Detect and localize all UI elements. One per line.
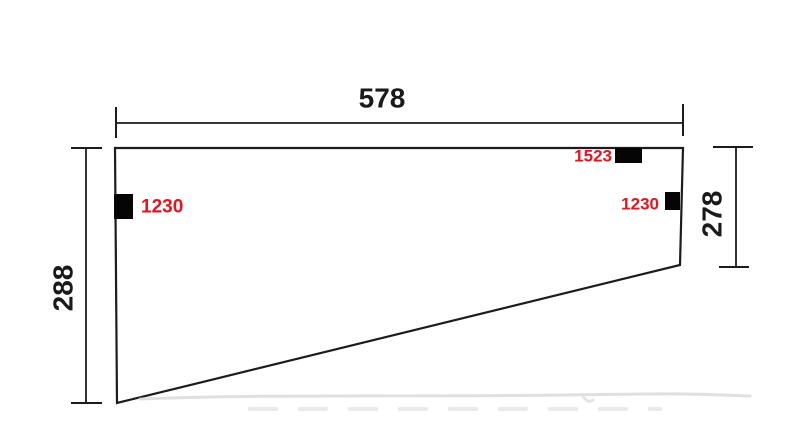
scan-artifact-line	[140, 394, 750, 399]
marker-top-right	[615, 148, 642, 163]
dimension-left-value: 288	[48, 265, 79, 312]
marker-left	[114, 194, 133, 219]
dimension-right: 278	[697, 147, 754, 267]
dimension-drawing-svg: 578 288 278 1230 1523 1230	[0, 0, 793, 443]
scan-artifact-squiggle	[583, 396, 593, 401]
marker-right	[665, 192, 680, 210]
dimension-top-value: 578	[359, 83, 406, 114]
marker-right-label: 1230	[621, 195, 659, 214]
drawing-canvas: 578 288 278 1230 1523 1230	[0, 0, 793, 443]
panel-outline	[115, 148, 683, 403]
scan-artifacts	[140, 394, 750, 409]
dimension-left: 288	[48, 148, 103, 403]
dimension-top: 578	[116, 83, 683, 139]
marker-top-right-label: 1523	[574, 147, 612, 166]
dimension-right-value: 278	[697, 191, 728, 238]
marker-left-label: 1230	[141, 197, 183, 218]
